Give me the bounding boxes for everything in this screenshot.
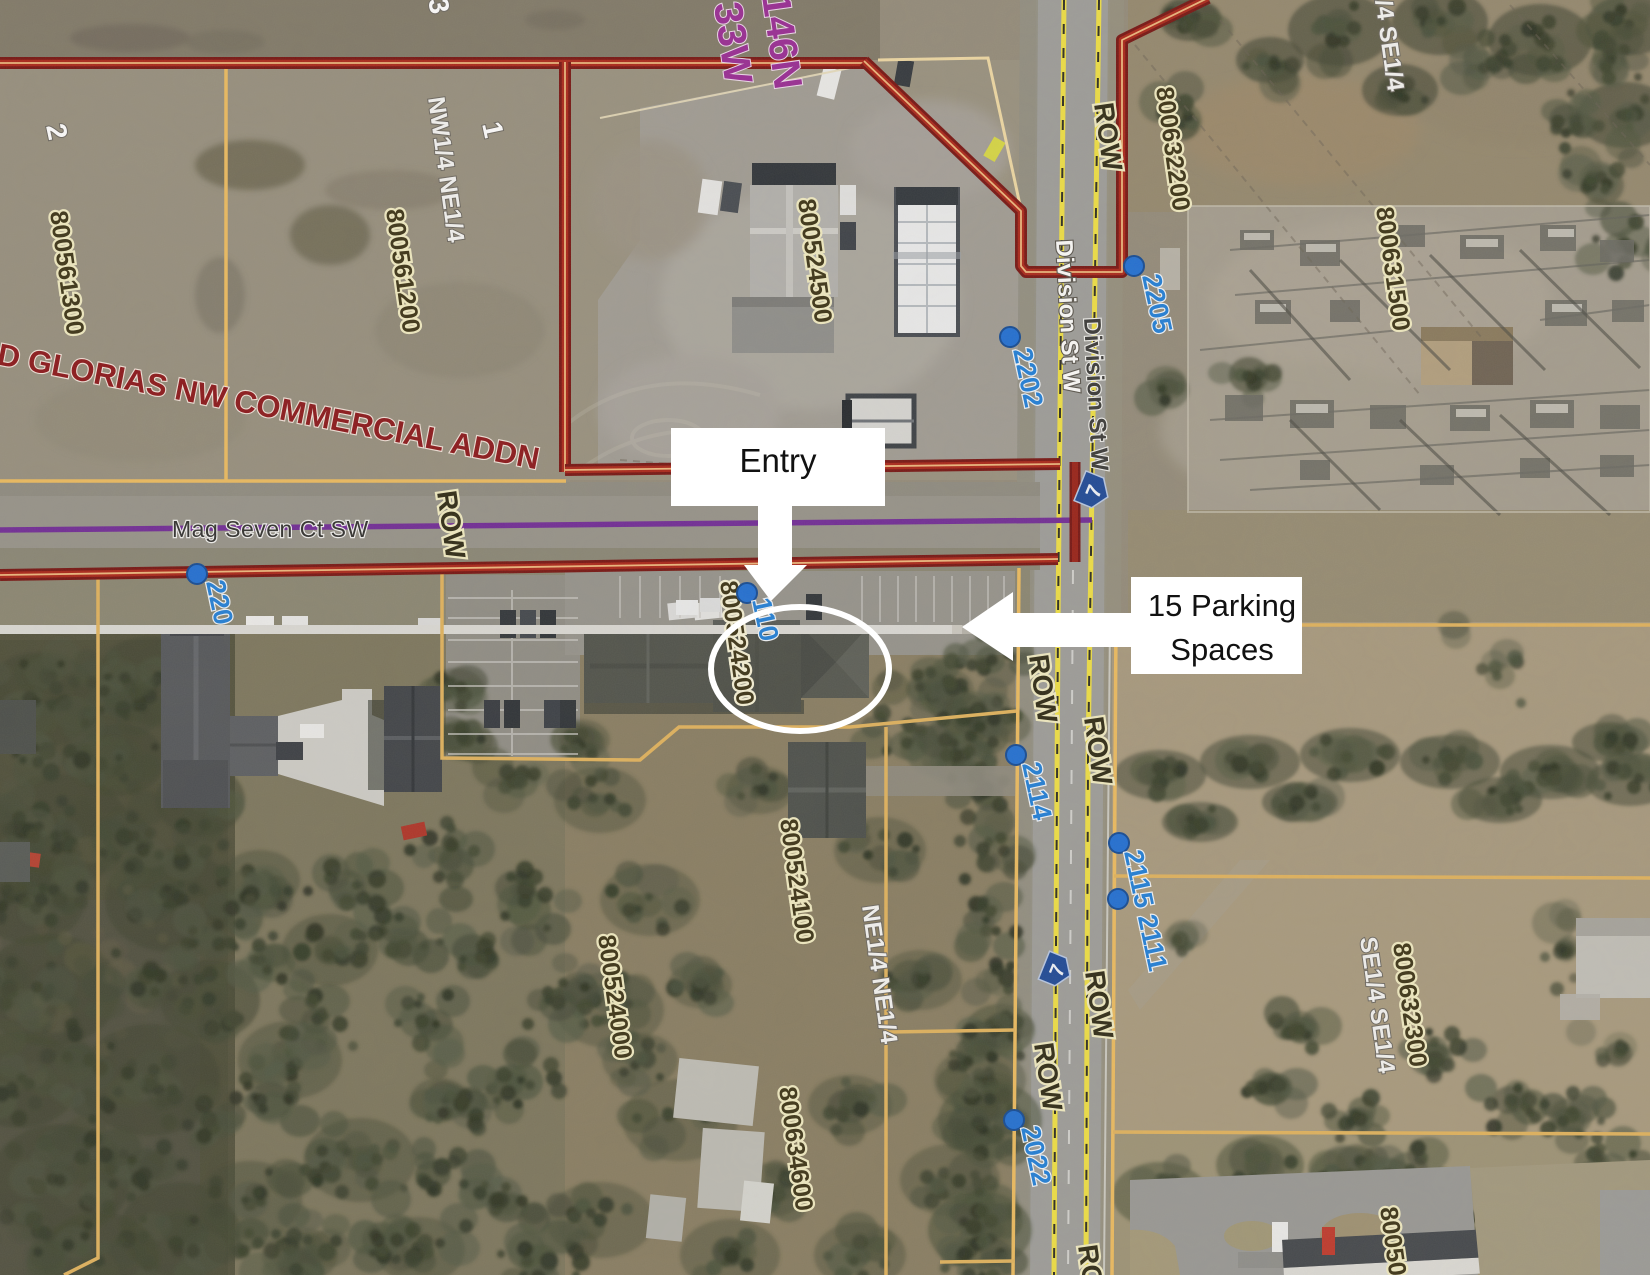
svg-text:15 Parking: 15 Parking	[1148, 588, 1296, 623]
svg-text:Spaces: Spaces	[1170, 632, 1273, 667]
svg-text:Entry: Entry	[739, 442, 817, 479]
